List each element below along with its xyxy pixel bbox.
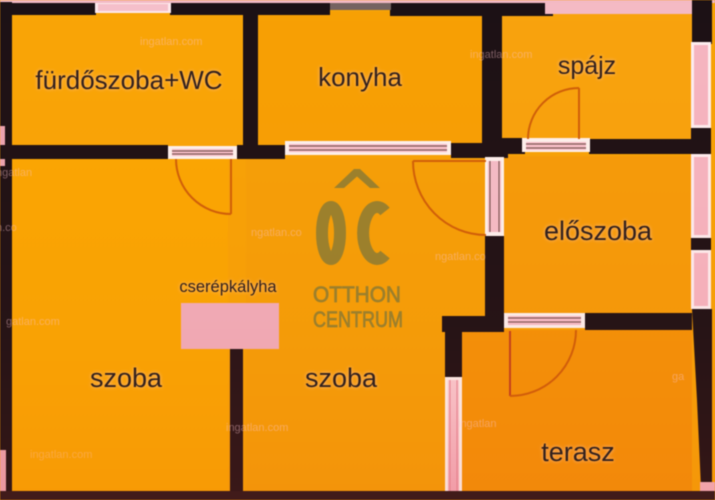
svg-text:szoba: szoba — [90, 363, 163, 393]
svg-text:spájz: spájz — [558, 52, 616, 80]
svg-text:ingatlan.com: ingatlan.com — [140, 36, 202, 48]
svg-text:konyha: konyha — [318, 62, 402, 92]
svg-text:előszoba: előszoba — [544, 216, 653, 246]
svg-text:OTTHON: OTTHON — [313, 282, 401, 307]
svg-text:ingatlan.com: ingatlan.com — [30, 449, 92, 461]
svg-text:ngatlan.co: ngatlan.co — [435, 251, 486, 263]
svg-text:ingatlan.com: ingatlan.com — [470, 49, 532, 61]
svg-text:fürdőszoba+WC: fürdőszoba+WC — [35, 65, 222, 95]
svg-text:ngatlan: ngatlan — [0, 167, 32, 179]
svg-text:gatlan.com: gatlan.com — [6, 316, 60, 328]
svg-text:ingatlan: ingatlan — [458, 418, 497, 430]
svg-text:CENTRUM: CENTRUM — [313, 307, 403, 332]
svg-text:n.co: n.co — [0, 222, 17, 234]
svg-text:ngatlan.co: ngatlan.co — [251, 227, 302, 239]
svg-text:terasz: terasz — [541, 437, 615, 467]
svg-text:ga: ga — [672, 371, 685, 383]
svg-text:ingatlan.com: ingatlan.com — [226, 422, 288, 434]
svg-text:cserépkályha: cserépkályha — [179, 278, 277, 296]
svg-text:szoba: szoba — [305, 363, 378, 393]
